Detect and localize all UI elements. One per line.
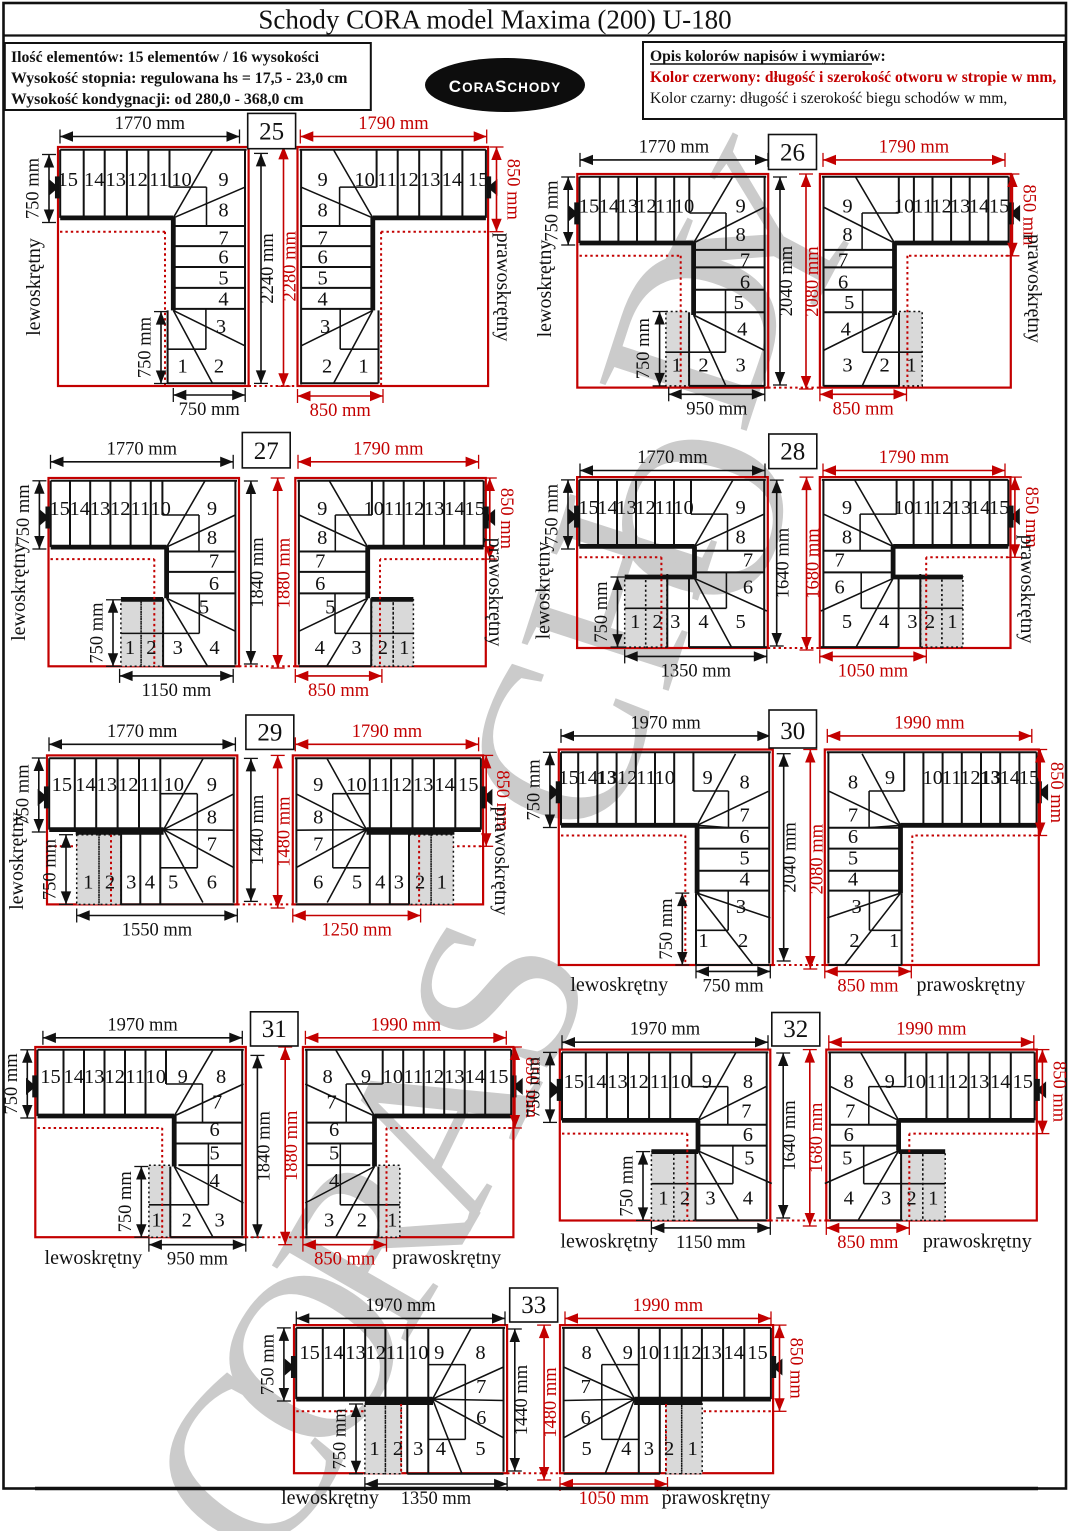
svg-text:4: 4 [698,611,708,633]
svg-text:2: 2 [378,637,388,659]
svg-text:750 mm: 750 mm [258,1333,278,1395]
svg-text:6: 6 [743,577,753,599]
svg-text:6: 6 [739,826,749,848]
svg-text:1840 mm: 1840 mm [254,1110,274,1181]
svg-text:2040 mm: 2040 mm [777,245,797,316]
svg-text:15: 15 [40,1066,61,1088]
svg-text:4: 4 [436,1438,446,1460]
svg-text:5: 5 [842,611,852,633]
svg-text:2: 2 [879,355,889,377]
svg-text:12: 12 [118,774,139,796]
svg-text:9: 9 [735,497,745,519]
svg-text:1: 1 [658,1188,668,1210]
svg-text:3: 3 [173,637,183,659]
svg-text:15: 15 [464,498,485,520]
svg-text:Wysokość kondygnacji: od 280,0: Wysokość kondygnacji: od 280,0 - 368,0 c… [11,91,304,108]
svg-text:32: 32 [783,1016,808,1043]
svg-text:9: 9 [313,774,323,796]
svg-text:11: 11 [655,497,675,519]
svg-text:1770 mm: 1770 mm [107,439,178,459]
svg-text:28: 28 [780,439,805,466]
svg-text:8: 8 [218,200,228,222]
svg-text:1: 1 [947,611,957,633]
svg-text:Wysokość stopnia: regulowana: Wysokość stopnia: regulowana hs = 17,5 -… [11,70,347,87]
svg-text:3: 3 [907,611,917,633]
svg-text:1970 mm: 1970 mm [107,1015,178,1035]
svg-text:5: 5 [218,268,228,290]
svg-text:9: 9 [178,1066,188,1088]
svg-text:750 mm: 750 mm [41,838,61,900]
svg-text:5: 5 [168,872,178,894]
svg-text:Kolor czarny: długość i szero: Kolor czarny: długość i szerokość biegu … [650,90,1007,107]
svg-text:13: 13 [420,169,441,191]
svg-text:1640 mm: 1640 mm [774,527,794,598]
svg-text:5: 5 [735,611,745,633]
svg-text:6: 6 [317,247,327,269]
svg-text:12: 12 [681,1342,702,1364]
svg-text:12: 12 [105,1066,126,1088]
svg-text:9: 9 [842,196,852,218]
svg-text:1790 mm: 1790 mm [352,722,423,742]
svg-text:7: 7 [476,1376,486,1398]
svg-text:11: 11 [927,1071,947,1093]
svg-text:13: 13 [980,767,1001,789]
svg-text:15: 15 [488,1066,509,1088]
svg-text:6: 6 [581,1407,591,1429]
svg-text:1: 1 [672,355,682,377]
svg-text:1770 mm: 1770 mm [107,722,178,742]
svg-text:750 mm: 750 mm [88,602,108,664]
svg-text:2: 2 [146,637,156,659]
svg-text:9: 9 [207,774,217,796]
svg-text:prawoskrętny: prawoskrętny [392,1247,501,1269]
svg-text:27: 27 [254,438,279,465]
svg-text:12: 12 [636,196,657,218]
svg-text:1: 1 [369,1438,379,1460]
svg-text:8: 8 [317,200,327,222]
svg-text:11: 11 [140,774,160,796]
svg-text:15: 15 [1019,767,1040,789]
svg-text:1: 1 [125,637,135,659]
svg-text:4: 4 [621,1438,631,1460]
svg-text:750 mm: 750 mm [634,318,654,380]
svg-text:1: 1 [687,1438,697,1460]
svg-text:1990 mm: 1990 mm [894,713,965,733]
svg-text:11: 11 [650,1071,670,1093]
svg-text:9: 9 [885,767,895,789]
svg-text:14: 14 [578,767,599,789]
svg-text:5: 5 [739,848,749,870]
svg-text:750 mm: 750 mm [2,1053,22,1115]
svg-text:8: 8 [735,224,745,246]
svg-text:15: 15 [747,1342,768,1364]
svg-text:15: 15 [578,497,599,519]
svg-text:11: 11 [131,498,151,520]
svg-text:2080 mm: 2080 mm [803,246,823,317]
svg-text:6: 6 [740,272,750,294]
svg-text:15: 15 [558,767,579,789]
svg-text:14: 14 [586,1071,607,1093]
svg-text:2: 2 [393,1438,403,1460]
svg-text:4: 4 [879,611,889,633]
svg-text:29: 29 [257,719,282,746]
svg-text:14: 14 [442,169,463,191]
svg-text:lewoskrętny: lewoskrętny [23,238,45,336]
svg-text:9: 9 [434,1342,444,1364]
svg-text:CORASCHODY: CORASCHODY [449,77,561,96]
svg-text:13: 13 [444,1066,465,1088]
svg-text:1970 mm: 1970 mm [365,1296,436,1316]
svg-text:10: 10 [146,1066,167,1088]
svg-text:5: 5 [329,1143,339,1165]
svg-text:750 mm: 750 mm [179,400,241,420]
svg-text:7: 7 [212,1092,222,1114]
svg-text:1680 mm: 1680 mm [804,528,824,599]
svg-text:3: 3 [394,872,404,894]
svg-text:7: 7 [838,250,848,272]
svg-text:33: 33 [521,1292,546,1319]
svg-text:1: 1 [889,930,899,952]
svg-text:15: 15 [564,1071,585,1093]
svg-text:4: 4 [218,288,228,310]
svg-text:6: 6 [834,577,844,599]
svg-text:14: 14 [84,169,105,191]
svg-text:2: 2 [415,872,425,894]
svg-text:6: 6 [207,872,217,894]
svg-text:2: 2 [214,356,224,378]
svg-text:15: 15 [989,196,1010,218]
svg-text:1440 mm: 1440 mm [512,1364,532,1435]
svg-text:15: 15 [58,169,79,191]
svg-text:1: 1 [83,872,93,894]
svg-text:750 mm: 750 mm [618,1155,638,1217]
svg-text:8: 8 [207,527,217,549]
svg-text:1: 1 [906,355,916,377]
svg-text:1150 mm: 1150 mm [676,1233,746,1253]
svg-text:1: 1 [698,930,708,952]
svg-text:7: 7 [581,1376,591,1398]
svg-text:11: 11 [913,196,933,218]
svg-text:3: 3 [126,872,136,894]
svg-text:8: 8 [739,772,749,794]
svg-text:8: 8 [735,527,745,549]
svg-text:1: 1 [928,1188,938,1210]
svg-text:850 mm: 850 mm [310,401,372,421]
svg-text:prawoskrętny: prawoskrętny [923,1231,1032,1253]
svg-text:5: 5 [209,1143,219,1165]
svg-text:8: 8 [313,807,323,829]
svg-text:8: 8 [475,1342,485,1364]
svg-text:8: 8 [207,807,217,829]
svg-text:6: 6 [315,573,325,595]
svg-text:1: 1 [151,1210,161,1232]
svg-text:4: 4 [375,872,385,894]
svg-text:14: 14 [970,497,991,519]
svg-text:2: 2 [698,355,708,377]
svg-text:12: 12 [932,497,953,519]
svg-text:10: 10 [894,497,915,519]
svg-text:1: 1 [177,356,187,378]
svg-text:750 mm: 750 mm [543,483,563,545]
svg-text:10: 10 [923,767,944,789]
svg-text:8: 8 [216,1066,226,1088]
svg-text:1880 mm: 1880 mm [282,1110,302,1181]
svg-text:8: 8 [848,772,858,794]
svg-text:5: 5 [199,597,209,619]
svg-text:2080 mm: 2080 mm [807,823,827,894]
svg-text:2: 2 [322,356,332,378]
svg-text:8: 8 [842,527,852,549]
svg-text:7: 7 [741,1101,751,1123]
svg-text:9: 9 [361,1066,371,1088]
svg-text:2: 2 [652,611,662,633]
svg-text:1480 mm: 1480 mm [541,1367,561,1438]
svg-text:2240 mm: 2240 mm [258,233,278,304]
svg-text:lewoskrętny: lewoskrętny [45,1247,143,1269]
svg-text:15: 15 [1012,1071,1033,1093]
svg-text:15: 15 [52,774,73,796]
svg-text:850 mm: 850 mm [1046,762,1066,824]
svg-text:4: 4 [209,637,219,659]
svg-text:prawoskrętny: prawoskrętny [1016,535,1038,644]
svg-text:6: 6 [209,1119,219,1141]
svg-text:850 mm: 850 mm [786,1338,806,1400]
svg-text:14: 14 [969,196,990,218]
svg-text:11: 11 [942,767,962,789]
svg-text:10: 10 [171,169,192,191]
svg-text:1970 mm: 1970 mm [630,1020,701,1040]
svg-text:1840 mm: 1840 mm [248,537,268,608]
svg-text:12: 12 [635,497,656,519]
svg-text:850 mm: 850 mm [1048,1061,1068,1123]
svg-text:4: 4 [743,1188,753,1210]
svg-text:1790 mm: 1790 mm [879,137,950,157]
svg-text:11: 11 [377,169,397,191]
svg-text:lewoskrętny: lewoskrętny [570,974,668,996]
svg-text:9: 9 [317,498,327,520]
svg-text:4: 4 [209,1170,219,1192]
svg-text:7: 7 [326,1092,336,1114]
svg-text:10: 10 [894,196,915,218]
svg-text:5: 5 [844,292,854,314]
svg-text:10: 10 [383,1066,404,1088]
svg-text:1970 mm: 1970 mm [630,713,701,733]
svg-text:3: 3 [214,1210,224,1232]
svg-text:prawoskrętny: prawoskrętny [916,974,1025,996]
svg-text:850 mm: 850 mm [503,159,523,221]
svg-text:31: 31 [262,1016,287,1043]
svg-text:1550 mm: 1550 mm [122,921,193,941]
svg-text:2: 2 [906,1188,916,1210]
svg-text:7: 7 [834,550,844,572]
svg-text:6: 6 [476,1407,486,1429]
svg-text:6: 6 [844,1124,854,1146]
svg-text:4: 4 [841,319,851,341]
svg-text:14: 14 [990,1071,1011,1093]
svg-text:13: 13 [969,1071,990,1093]
svg-text:4: 4 [739,869,749,891]
svg-text:11: 11 [636,767,656,789]
svg-text:7: 7 [740,250,750,272]
svg-text:2: 2 [105,872,115,894]
svg-text:prawoskrętny: prawoskrętny [490,807,512,916]
svg-text:1: 1 [399,637,409,659]
svg-text:8: 8 [322,1066,332,1088]
svg-text:8: 8 [743,1071,753,1093]
svg-text:7: 7 [209,551,219,573]
svg-text:4: 4 [329,1170,339,1192]
svg-text:13: 13 [597,767,618,789]
svg-text:lewoskrętny: lewoskrętny [281,1487,379,1509]
svg-text:lewoskrętny: lewoskrętny [8,543,30,641]
svg-text:850 mm: 850 mm [837,1233,899,1253]
svg-text:5: 5 [325,597,335,619]
svg-text:2280 mm: 2280 mm [281,230,301,301]
svg-text:3: 3 [644,1438,654,1460]
svg-text:1990 mm: 1990 mm [633,1296,704,1316]
svg-text:750 mm: 750 mm [525,1056,545,1118]
svg-text:9: 9 [317,169,327,191]
svg-text:12: 12 [424,1066,445,1088]
svg-text:10: 10 [655,767,676,789]
svg-text:14: 14 [597,497,618,519]
svg-text:2: 2 [182,1210,192,1232]
svg-text:7: 7 [743,550,753,572]
svg-text:3: 3 [351,637,361,659]
svg-text:5: 5 [352,872,362,894]
svg-text:1440 mm: 1440 mm [248,794,268,865]
svg-text:11: 11 [371,774,391,796]
svg-text:10: 10 [346,774,367,796]
svg-text:3: 3 [324,1210,334,1232]
svg-text:1: 1 [437,872,447,894]
svg-text:6: 6 [743,1124,753,1146]
svg-text:2: 2 [357,1210,367,1232]
svg-text:13: 13 [90,498,111,520]
svg-text:15: 15 [468,169,489,191]
svg-text:prawoskrętny: prawoskrętny [492,233,514,342]
svg-text:1790 mm: 1790 mm [358,114,429,134]
svg-text:2: 2 [925,611,935,633]
svg-text:1050 mm: 1050 mm [838,661,909,681]
svg-text:25: 25 [259,119,284,146]
svg-text:9: 9 [623,1342,633,1364]
svg-text:Opis kolorów napisów i wymiaró: Opis kolorów napisów i wymiarów: [650,48,886,65]
svg-text:750 mm: 750 mm [24,157,44,219]
svg-text:3: 3 [705,1188,715,1210]
svg-text:750 mm: 750 mm [331,1408,351,1470]
svg-text:5: 5 [848,848,858,870]
svg-text:13: 13 [701,1342,722,1364]
svg-text:10: 10 [408,1342,429,1364]
svg-text:12: 12 [127,169,148,191]
svg-text:2040 mm: 2040 mm [781,822,801,893]
svg-text:9: 9 [702,767,712,789]
svg-text:9: 9 [885,1071,895,1093]
svg-text:9: 9 [842,497,852,519]
svg-text:13: 13 [951,497,972,519]
svg-text:9: 9 [702,1071,712,1093]
svg-text:1770 mm: 1770 mm [637,448,708,468]
svg-text:14: 14 [75,774,96,796]
svg-text:12: 12 [931,196,952,218]
svg-text:13: 13 [84,1066,105,1088]
svg-text:9: 9 [218,169,228,191]
svg-text:15: 15 [989,497,1010,519]
svg-text:4: 4 [737,319,747,341]
svg-text:4: 4 [848,869,858,891]
svg-text:750 mm: 750 mm [592,581,612,643]
svg-text:1: 1 [630,611,640,633]
svg-text:4: 4 [145,872,155,894]
svg-text:14: 14 [70,498,91,520]
svg-text:1: 1 [358,356,368,378]
svg-text:1: 1 [387,1210,397,1232]
svg-text:11: 11 [149,169,169,191]
svg-text:950 mm: 950 mm [167,1250,229,1270]
svg-text:10: 10 [906,1071,927,1093]
svg-text:lewoskrętny: lewoskrętny [560,1231,658,1253]
svg-text:5: 5 [842,1148,852,1170]
svg-text:12: 12 [960,767,981,789]
svg-text:14: 14 [444,498,465,520]
svg-text:11: 11 [125,1066,145,1088]
svg-text:3: 3 [881,1188,891,1210]
svg-text:12: 12 [110,498,131,520]
svg-text:5: 5 [744,1148,754,1170]
svg-text:750 mm: 750 mm [116,1171,136,1233]
svg-text:6: 6 [838,272,848,294]
svg-text:4: 4 [317,288,327,310]
svg-text:12: 12 [948,1071,969,1093]
svg-text:1990 mm: 1990 mm [371,1015,442,1035]
svg-text:11: 11 [913,497,933,519]
svg-text:Kolor czerwony: długość i sze: Kolor czerwony: długość i szerokość otwo… [650,69,1056,86]
svg-text:6: 6 [218,247,228,269]
svg-text:prawoskrętny: prawoskrętny [484,538,506,647]
svg-text:850 mm: 850 mm [308,681,370,701]
svg-text:5: 5 [475,1438,485,1460]
svg-text:13: 13 [106,169,127,191]
svg-text:7: 7 [207,834,217,856]
svg-text:10: 10 [674,196,695,218]
svg-text:7: 7 [739,805,749,827]
svg-text:Ilość elementów: 15 elementów: Ilość elementów: 15 elementów / 16 wysok… [11,49,320,66]
svg-text:1050 mm: 1050 mm [579,1489,650,1509]
svg-text:2: 2 [738,930,748,952]
svg-text:10: 10 [354,169,375,191]
svg-text:2: 2 [664,1438,674,1460]
svg-text:4: 4 [315,637,325,659]
svg-text:lewoskrętny: lewoskrętny [534,240,556,338]
svg-text:1480 mm: 1480 mm [275,796,295,867]
svg-text:14: 14 [323,1342,344,1364]
svg-text:1250 mm: 1250 mm [321,921,392,941]
svg-text:3: 3 [851,896,861,918]
svg-text:5: 5 [317,268,327,290]
svg-text:13: 13 [607,1071,628,1093]
svg-text:850 mm: 850 mm [833,399,895,419]
svg-text:7: 7 [313,834,323,856]
svg-text:7: 7 [315,551,325,573]
svg-text:1770 mm: 1770 mm [639,137,710,157]
svg-text:13: 13 [413,774,434,796]
svg-text:10: 10 [150,498,171,520]
svg-text:1790 mm: 1790 mm [879,448,950,468]
svg-text:3: 3 [842,355,852,377]
svg-text:12: 12 [628,1071,649,1093]
svg-text:750 mm: 750 mm [136,316,156,378]
